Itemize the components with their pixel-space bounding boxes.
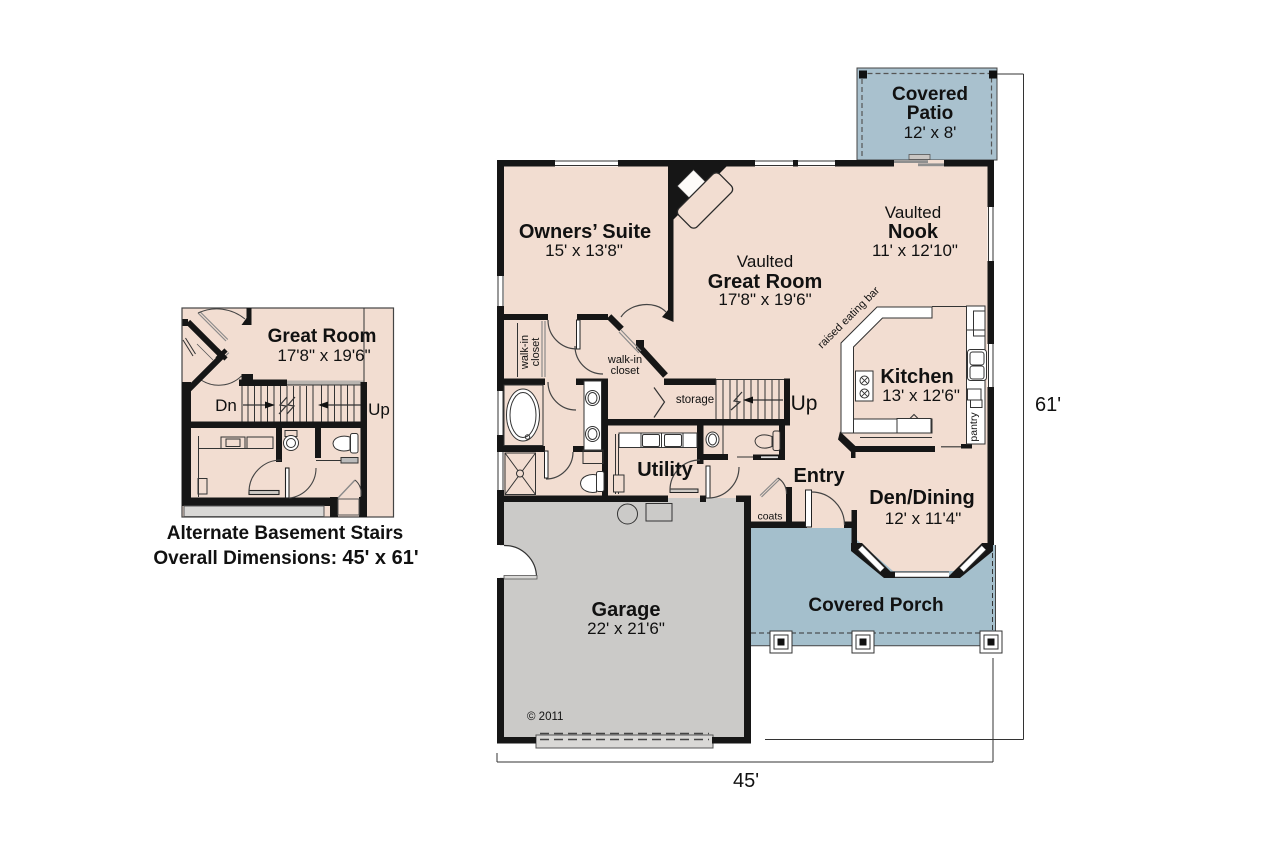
svg-text:Covered Porch: Covered Porch — [808, 595, 943, 616]
svg-text:Alternate Basement Stairs: Alternate Basement Stairs — [167, 523, 404, 544]
svg-text:Owners’ Suite: Owners’ Suite — [519, 221, 651, 243]
svg-text:Vaulted: Vaulted — [737, 252, 793, 271]
svg-text:Up: Up — [791, 392, 818, 415]
svg-text:Patio: Patio — [907, 103, 953, 124]
svg-text:coats: coats — [757, 511, 782, 523]
svg-text:Den/Dining: Den/Dining — [869, 487, 975, 509]
svg-text:closet: closet — [530, 338, 542, 367]
svg-text:61': 61' — [1035, 394, 1061, 416]
svg-text:Nook: Nook — [888, 221, 939, 243]
svg-text:Entry: Entry — [793, 465, 845, 487]
svg-text:12' x 11'4": 12' x 11'4" — [885, 509, 961, 528]
svg-text:15' x 13'8": 15' x 13'8" — [545, 241, 623, 260]
svg-text:17'8" x 19'6": 17'8" x 19'6" — [277, 346, 370, 365]
svg-text:closet: closet — [611, 365, 640, 377]
svg-text:Utility: Utility — [637, 459, 693, 481]
svg-text:pantry: pantry — [968, 412, 980, 442]
svg-text:© 2011: © 2011 — [527, 711, 563, 723]
svg-text:Garage: Garage — [592, 599, 661, 621]
svg-text:Dn: Dn — [215, 396, 237, 415]
svg-text:11' x 12'10": 11' x 12'10" — [872, 241, 958, 260]
svg-text:Covered: Covered — [892, 84, 968, 105]
svg-text:storage: storage — [676, 394, 714, 406]
svg-text:Up: Up — [368, 400, 390, 419]
svg-text:Vaulted: Vaulted — [885, 203, 941, 222]
svg-text:Overall Dimensions: 45' x 61': Overall Dimensions: 45' x 61' — [153, 547, 418, 569]
svg-text:45': 45' — [733, 770, 759, 792]
svg-text:Kitchen: Kitchen — [880, 366, 953, 388]
svg-text:12' x 8': 12' x 8' — [904, 123, 957, 142]
svg-text:13' x 12'6": 13' x 12'6" — [882, 386, 960, 405]
svg-text:17'8" x 19'6": 17'8" x 19'6" — [718, 290, 811, 309]
svg-text:Great Room: Great Room — [268, 326, 377, 347]
svg-text:22' x 21'6": 22' x 21'6" — [587, 619, 665, 638]
